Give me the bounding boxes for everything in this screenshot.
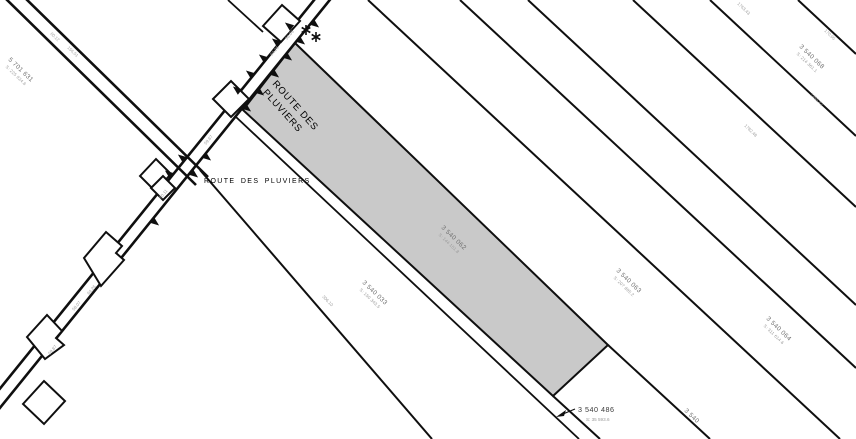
- road-edge: [0, 0, 319, 438]
- parcel-label-group: 3 540 033S: 150 343.5: [356, 279, 388, 311]
- star-marker-icon: [312, 32, 321, 42]
- parcel-area: S: 35 593.6: [586, 417, 610, 422]
- survey-marker-stars: [302, 25, 321, 42]
- road-edge: [3, 0, 196, 185]
- measurement-label: 64.26: [269, 45, 280, 57]
- survey-tick-icon: [202, 152, 213, 163]
- cadastral-map-view[interactable]: ROUTE DES PLUVIERS ROUTE DES PLUVIERS 5 …: [0, 0, 856, 439]
- map-canvas[interactable]: ROUTE DES PLUVIERS ROUTE DES PLUVIERS 5 …: [0, 0, 856, 439]
- measurement-label: 156.51: [66, 45, 80, 58]
- parcel-label-group: 3 540 063S: 207 895.2: [610, 267, 642, 299]
- callout-label-group: 3 540 486S: 35 593.6: [578, 405, 614, 422]
- building-footprint: [23, 381, 65, 424]
- measurement-label: 306.10: [321, 294, 334, 308]
- measurement-label: 1485.42: [809, 92, 824, 107]
- building-footprint: [263, 5, 300, 42]
- parcel-label-group: 3 540 064S: 311 614.6: [760, 315, 792, 347]
- measurement-label: 1763.43: [736, 1, 751, 16]
- parcel-label-group: 3 540 068S: 214 361.1: [793, 43, 825, 75]
- measurement-label: 1782.48: [743, 123, 758, 138]
- survey-tick-icon: [257, 52, 268, 63]
- measurement-label: 170.95: [823, 28, 837, 41]
- parcel-number: 3 540 486: [578, 405, 614, 414]
- road-name-horizontal: ROUTE DES PLUVIERS: [204, 178, 311, 185]
- parcel-label-group: 5 701 631S: 225 924.6: [2, 56, 34, 88]
- selected-parcel-shape[interactable]: [243, 43, 608, 396]
- road-edge: [21, 0, 208, 177]
